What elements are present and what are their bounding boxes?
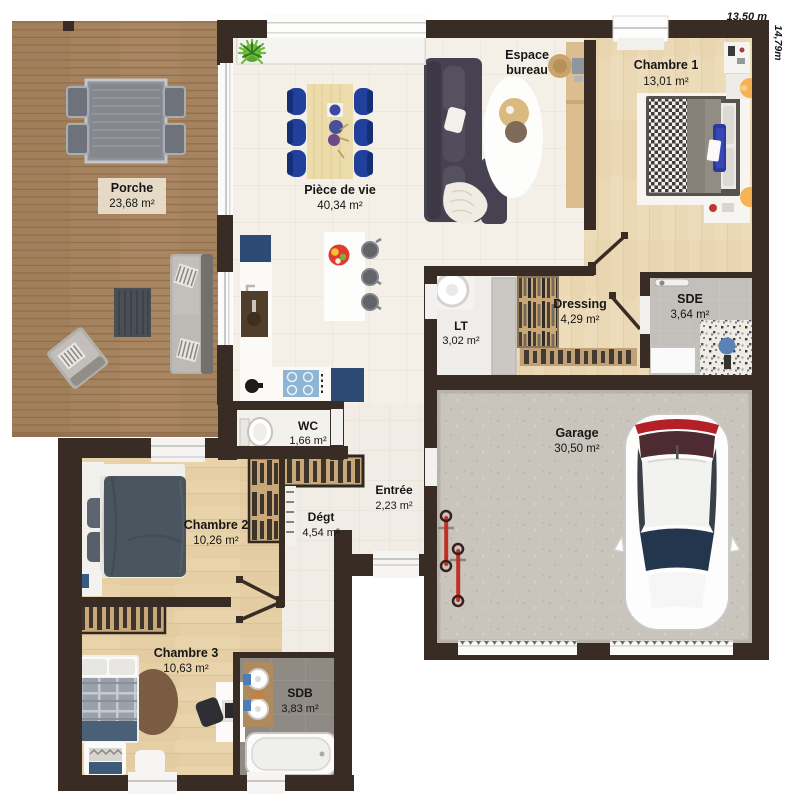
svg-text:Garage: Garage [555, 426, 598, 440]
svg-text:Entrée: Entrée [375, 483, 413, 497]
svg-text:13,01 m²: 13,01 m² [643, 76, 689, 88]
svg-text:Chambre 1: Chambre 1 [634, 58, 699, 72]
svg-text:Pièce de vie: Pièce de vie [304, 183, 376, 197]
svg-text:1,66 m²: 1,66 m² [289, 435, 327, 447]
svg-text:Porche: Porche [111, 181, 153, 195]
svg-text:2,23 m²: 2,23 m² [375, 500, 413, 512]
svg-text:30,50 m²: 30,50 m² [554, 443, 600, 455]
svg-text:10,26 m²: 10,26 m² [193, 535, 239, 547]
svg-text:40,34 m²: 40,34 m² [317, 200, 363, 212]
svg-text:bureau: bureau [506, 63, 548, 77]
svg-text:Chambre 3: Chambre 3 [154, 646, 219, 660]
svg-text:4,54 m²: 4,54 m² [302, 527, 340, 539]
svg-text:14,79m: 14,79m [772, 25, 784, 61]
svg-text:4,29 m²: 4,29 m² [561, 314, 600, 326]
svg-text:3,02 m²: 3,02 m² [442, 335, 480, 347]
svg-text:13,50 m: 13,50 m [727, 11, 768, 23]
svg-text:WC: WC [298, 419, 318, 433]
svg-text:Chambre 2: Chambre 2 [184, 518, 249, 532]
svg-text:23,68 m²: 23,68 m² [109, 198, 155, 210]
svg-text:Dégt: Dégt [308, 510, 335, 524]
svg-text:Espace: Espace [505, 48, 549, 62]
svg-text:LT: LT [454, 319, 468, 333]
svg-text:SDB: SDB [287, 686, 313, 700]
svg-text:3,64 m²: 3,64 m² [671, 309, 710, 321]
svg-text:Dressing: Dressing [553, 297, 607, 311]
svg-text:10,63 m²: 10,63 m² [163, 663, 209, 675]
svg-text:SDE: SDE [677, 292, 703, 306]
svg-text:3,83 m²: 3,83 m² [281, 703, 319, 715]
